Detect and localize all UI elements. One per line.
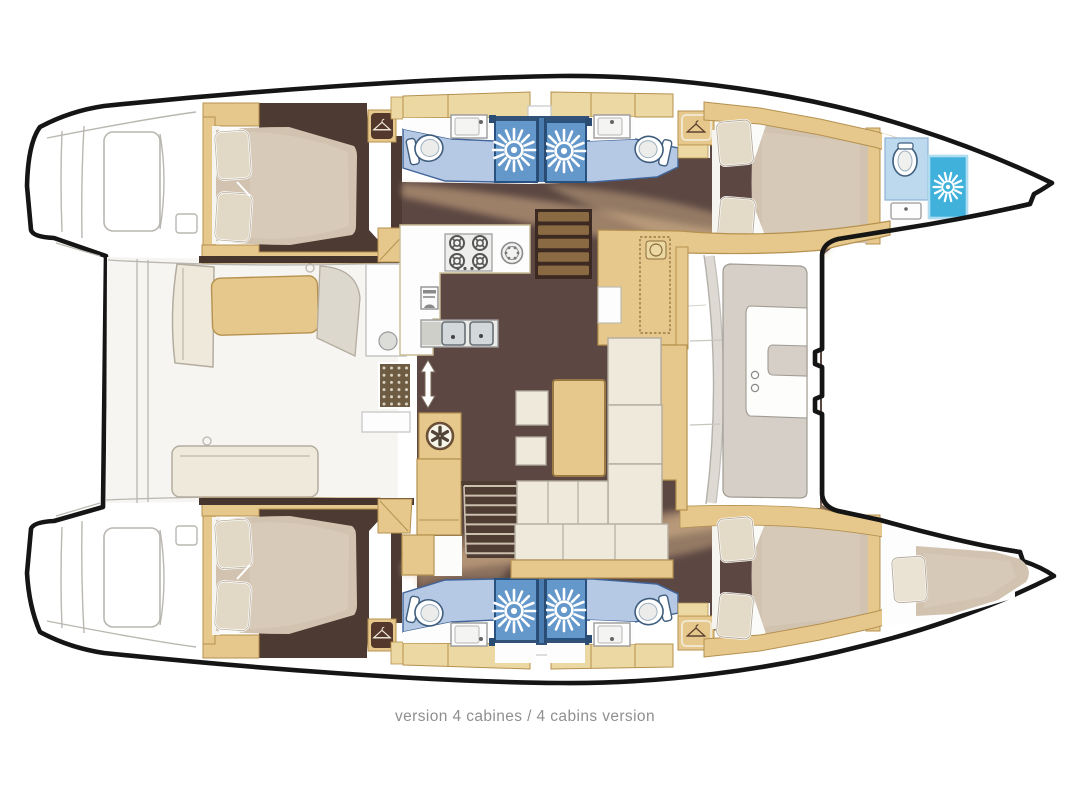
svg-text:version 4 cabines / 4 cabins v: version 4 cabines / 4 cabins version bbox=[395, 708, 655, 725]
